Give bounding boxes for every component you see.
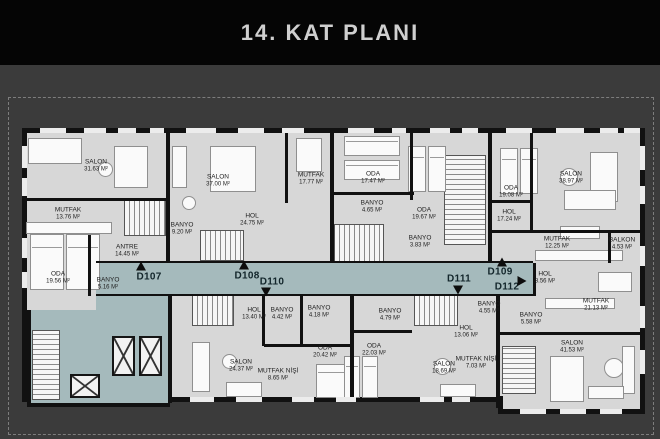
room-name: BANYO	[361, 200, 384, 207]
interior-wall	[285, 128, 288, 203]
room-name: BANYO	[97, 277, 120, 284]
interior-wall	[330, 128, 334, 263]
window-gap	[560, 409, 586, 414]
room-label: SALON37.00 M²	[206, 174, 230, 189]
room-name: ODA	[367, 343, 381, 350]
room-area: 41.53 M²	[560, 347, 584, 354]
window-gap	[238, 128, 264, 133]
furniture-circle	[604, 358, 624, 378]
room-label: MUTFAK NİŞİ7.03 M²	[456, 356, 497, 371]
room-name: SALON	[433, 361, 455, 368]
furniture-table	[564, 190, 616, 210]
window-gap	[22, 178, 27, 196]
interior-wall	[88, 235, 91, 296]
window-gap	[420, 397, 444, 402]
unit-id-label: D107	[136, 272, 161, 283]
window-gap	[556, 128, 584, 133]
room-area: 4.79 M²	[379, 315, 402, 322]
window-gap	[462, 128, 478, 133]
room-name: SALON	[85, 159, 107, 166]
room-label: MUTFAK13.76 M²	[55, 207, 81, 222]
interior-wall	[410, 128, 413, 200]
window-gap	[640, 350, 645, 374]
unit-id-label: D110	[260, 277, 285, 288]
room-area: 19.67 M²	[412, 214, 436, 221]
room-area: 12.25 M²	[544, 243, 570, 250]
window-gap	[22, 238, 27, 258]
elevator-icon	[139, 336, 162, 376]
room-area: 14.45 M²	[115, 251, 139, 258]
room-label: BANYO5.58 M²	[520, 312, 543, 327]
room-label: ODA17.47 M²	[361, 171, 385, 186]
room-name: MUTFAK	[544, 236, 570, 243]
room-area: 5.58 M²	[520, 319, 543, 326]
unit-entrance-arrow-up-icon	[497, 258, 507, 267]
interior-wall	[490, 200, 532, 203]
window-gap	[430, 128, 450, 133]
room-label: HOL13.40 M²	[242, 307, 266, 322]
room-area: 17.77 M²	[298, 179, 324, 186]
window-gap	[236, 397, 262, 402]
room-label: SALON24.37 M²	[229, 359, 253, 374]
window-gap	[190, 397, 214, 402]
room-name: HOL	[245, 213, 258, 220]
furniture-bed	[428, 146, 446, 192]
room-area: 9.20 M²	[171, 229, 194, 236]
interior-wall	[490, 230, 645, 233]
room-area: 5.16 M²	[97, 284, 120, 291]
room-name: SALON	[230, 359, 252, 366]
room-name: MUTFAK	[583, 298, 609, 305]
window-gap	[520, 409, 546, 414]
interior-wall	[488, 128, 492, 263]
unit-entrance-arrow-down-icon	[453, 286, 463, 295]
interior-wall	[530, 128, 533, 230]
room-label: HOL8.56 M²	[535, 271, 555, 286]
room-name: MUTFAK	[298, 172, 324, 179]
room-label: SALON38.97 M²	[559, 171, 583, 186]
window-gap	[348, 128, 374, 133]
furniture-bed	[66, 234, 100, 290]
window-gap	[186, 128, 216, 133]
furniture-box	[28, 138, 82, 164]
room-label: HOL13.06 M²	[454, 325, 478, 340]
room-name: ODA	[417, 207, 431, 214]
furniture-table	[296, 138, 322, 172]
unit-id-label: D111	[447, 274, 471, 285]
room-name: MUTFAK NİŞİ	[258, 368, 299, 375]
room-name: SALON	[207, 174, 229, 181]
interior-wall	[498, 332, 645, 335]
interior-wall	[96, 294, 533, 296]
room-label: SALON18.69 M²	[432, 361, 456, 376]
unit-entrance-arrow-right-icon	[518, 276, 527, 286]
room-name: SALON	[561, 340, 583, 347]
room-label: HOL17.24 M²	[497, 209, 521, 224]
window-gap	[600, 409, 622, 414]
room-area: 19.08 M²	[499, 192, 523, 199]
room-name: ODA	[51, 271, 65, 278]
room-label: ODA19.56 M²	[46, 271, 70, 286]
room-area: 17.24 M²	[497, 216, 521, 223]
room-area: 13.40 M²	[242, 314, 266, 321]
room-label: BALKON4.53 M²	[609, 237, 635, 252]
window-gap	[150, 128, 164, 133]
unit-entrance-arrow-up-icon	[136, 262, 146, 271]
room-name: HOL	[502, 209, 515, 216]
room-label: ANTRE14.45 M²	[115, 244, 139, 259]
room-name: SALON	[560, 171, 582, 178]
room-name: BANYO	[379, 308, 402, 315]
room-label: SALON41.53 M²	[560, 340, 584, 355]
room-label: BANYO4.18 M²	[308, 305, 331, 320]
interior-wall	[168, 296, 172, 403]
room-area: 19.56 M²	[46, 278, 70, 285]
room-name: ODA	[366, 171, 380, 178]
staircase-icon	[192, 294, 234, 326]
window-gap	[640, 146, 645, 170]
furniture-table	[440, 384, 476, 397]
staircase-icon	[444, 155, 486, 245]
unit-id-label: D109	[487, 267, 512, 278]
interior-wall	[330, 192, 414, 195]
room-label: ODA19.67 M²	[412, 207, 436, 222]
interior-wall	[264, 344, 354, 347]
room-name: BANYO	[171, 222, 194, 229]
room-name: BANYO	[271, 307, 294, 314]
room-area: 13.76 M²	[55, 214, 81, 221]
elevator-icon	[70, 374, 100, 398]
window-gap	[640, 306, 645, 328]
staircase-icon	[200, 230, 244, 261]
room-name: ODA	[318, 345, 332, 352]
unit-entrance-arrow-up-icon	[239, 261, 249, 270]
room-label: BANYO4.65 M²	[361, 200, 384, 215]
room-name: BANYO	[409, 235, 432, 242]
room-label: BANYO9.20 M²	[171, 222, 194, 237]
furniture-box	[26, 222, 112, 234]
room-label: MUTFAK21.13 M²	[583, 298, 609, 313]
room-label: BANYO4.55 M²	[478, 301, 501, 316]
interior-wall	[350, 296, 354, 400]
room-label: MUTFAK NİŞİ8.65 M²	[258, 368, 299, 383]
window-gap	[84, 128, 106, 133]
interior-wall	[22, 198, 170, 201]
window-gap	[292, 397, 314, 402]
room-name: MUTFAK NİŞİ	[456, 356, 497, 363]
room-label: MUTFAK12.25 M²	[544, 236, 570, 251]
room-name: HOL	[459, 325, 472, 332]
room-area: 4.55 M²	[478, 308, 501, 315]
room-label: BANYO4.79 M²	[379, 308, 402, 323]
room-area: 17.47 M²	[361, 178, 385, 185]
window-gap	[118, 128, 136, 133]
window-gap	[336, 397, 356, 402]
unit-entrance-arrow-down-icon	[261, 288, 271, 297]
interior-wall	[354, 330, 412, 333]
room-name: ANTRE	[116, 244, 138, 251]
staircase-icon	[414, 294, 458, 326]
furniture-bed	[362, 356, 378, 398]
room-area: 18.69 M²	[432, 368, 456, 375]
window-gap	[22, 272, 27, 288]
furniture-table	[114, 146, 148, 188]
room-area: 24.37 M²	[229, 366, 253, 373]
room-area: 4.18 M²	[308, 312, 331, 319]
window-gap	[624, 128, 640, 133]
room-area: 22.03 M²	[362, 350, 386, 357]
room-label: ODA19.08 M²	[499, 185, 523, 200]
room-area: 24.75 M²	[240, 220, 264, 227]
room-name: MUTFAK	[55, 207, 81, 214]
staircase-icon	[124, 198, 166, 236]
room-name: BALKON	[609, 237, 635, 244]
window-gap	[640, 186, 645, 204]
room-area: 3.83 M²	[409, 242, 432, 249]
unit-id-label: D112	[495, 282, 520, 293]
room-label: SALON31.63 M²	[84, 159, 108, 174]
room-area: 38.97 M²	[559, 178, 583, 185]
room-area: 8.65 M²	[258, 375, 299, 382]
room-name: BANYO	[478, 301, 501, 308]
window-gap	[40, 128, 66, 133]
room-label: ODA20.42 M²	[313, 345, 337, 360]
room-label: BANYO4.42 M²	[271, 307, 294, 322]
unit-id-label: D108	[234, 271, 259, 282]
furniture-bed	[344, 136, 400, 156]
furniture-box	[172, 146, 187, 188]
room-name: BANYO	[520, 312, 543, 319]
room-area: 7.03 M²	[456, 363, 497, 370]
room-area: 31.63 M²	[84, 166, 108, 173]
room-label: ODA22.03 M²	[362, 343, 386, 358]
window-gap	[506, 128, 532, 133]
room-area: 21.13 M²	[583, 305, 609, 312]
room-name: BANYO	[308, 305, 331, 312]
header-bar: 14. KAT PLANI	[0, 0, 660, 65]
window-gap	[282, 128, 304, 133]
room-area: 4.65 M²	[361, 207, 384, 214]
furniture-box	[588, 386, 624, 399]
room-area: 13.06 M²	[454, 332, 478, 339]
staircase-icon	[502, 346, 536, 394]
room-name: HOL	[538, 271, 551, 278]
elevator-icon	[112, 336, 135, 376]
interior-wall	[96, 261, 533, 263]
room-area: 4.53 M²	[609, 244, 635, 251]
interior-wall	[300, 296, 303, 344]
furniture-table	[226, 382, 262, 397]
room-label: BANYO5.16 M²	[97, 277, 120, 292]
room-name: ODA	[504, 185, 518, 192]
room-area: 8.56 M²	[535, 278, 555, 285]
window-gap	[392, 128, 406, 133]
window-gap	[640, 246, 645, 266]
furniture-table	[598, 272, 632, 292]
room-name: HOL	[247, 307, 260, 314]
room-area: 4.42 M²	[271, 314, 294, 321]
window-gap	[600, 128, 618, 133]
floor-plan-page: 14. KAT PLANI SALON31.63 M²MUTFAK13.76 M…	[0, 0, 660, 439]
staircase-icon	[334, 224, 384, 262]
room-area: 20.42 M²	[313, 352, 337, 359]
furniture-circle	[182, 196, 196, 210]
room-label: HOL24.75 M²	[240, 213, 264, 228]
room-area: 37.00 M²	[206, 181, 230, 188]
furniture-box	[192, 342, 210, 392]
furniture-table	[550, 356, 584, 402]
room-label: BANYO3.83 M²	[409, 235, 432, 250]
page-title: 14. KAT PLANI	[241, 20, 419, 46]
window-gap	[452, 397, 470, 402]
staircase-icon	[32, 330, 60, 400]
room-label: MUTFAK17.77 M²	[298, 172, 324, 187]
window-gap	[22, 146, 27, 168]
interior-wall	[166, 128, 170, 263]
